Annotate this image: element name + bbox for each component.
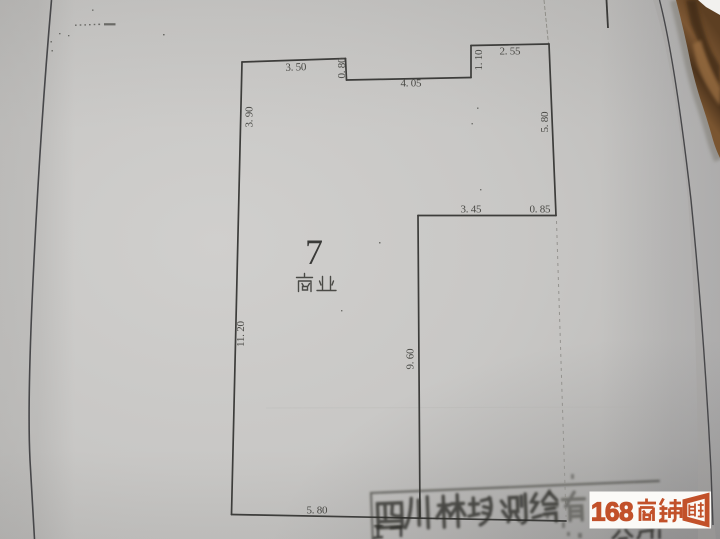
svg-text:0. 80: 0. 80 xyxy=(336,57,348,79)
svg-text:5. 80: 5. 80 xyxy=(539,111,551,133)
svg-text:168: 168 xyxy=(591,497,633,527)
svg-text:3. 90: 3. 90 xyxy=(244,106,256,128)
svg-text:3. 50: 3. 50 xyxy=(285,61,307,74)
svg-text:4. 05: 4. 05 xyxy=(401,78,423,90)
svg-text:2. 55: 2. 55 xyxy=(500,46,522,58)
svg-text:11. 20: 11. 20 xyxy=(235,321,247,348)
svg-text:9. 60: 9. 60 xyxy=(405,348,417,370)
svg-text:7: 7 xyxy=(305,232,323,272)
svg-text:0. 85: 0. 85 xyxy=(530,204,552,216)
svg-text:5. 80: 5. 80 xyxy=(307,505,329,517)
svg-text:3. 45: 3. 45 xyxy=(461,204,483,216)
svg-text:1. 10: 1. 10 xyxy=(473,49,485,71)
